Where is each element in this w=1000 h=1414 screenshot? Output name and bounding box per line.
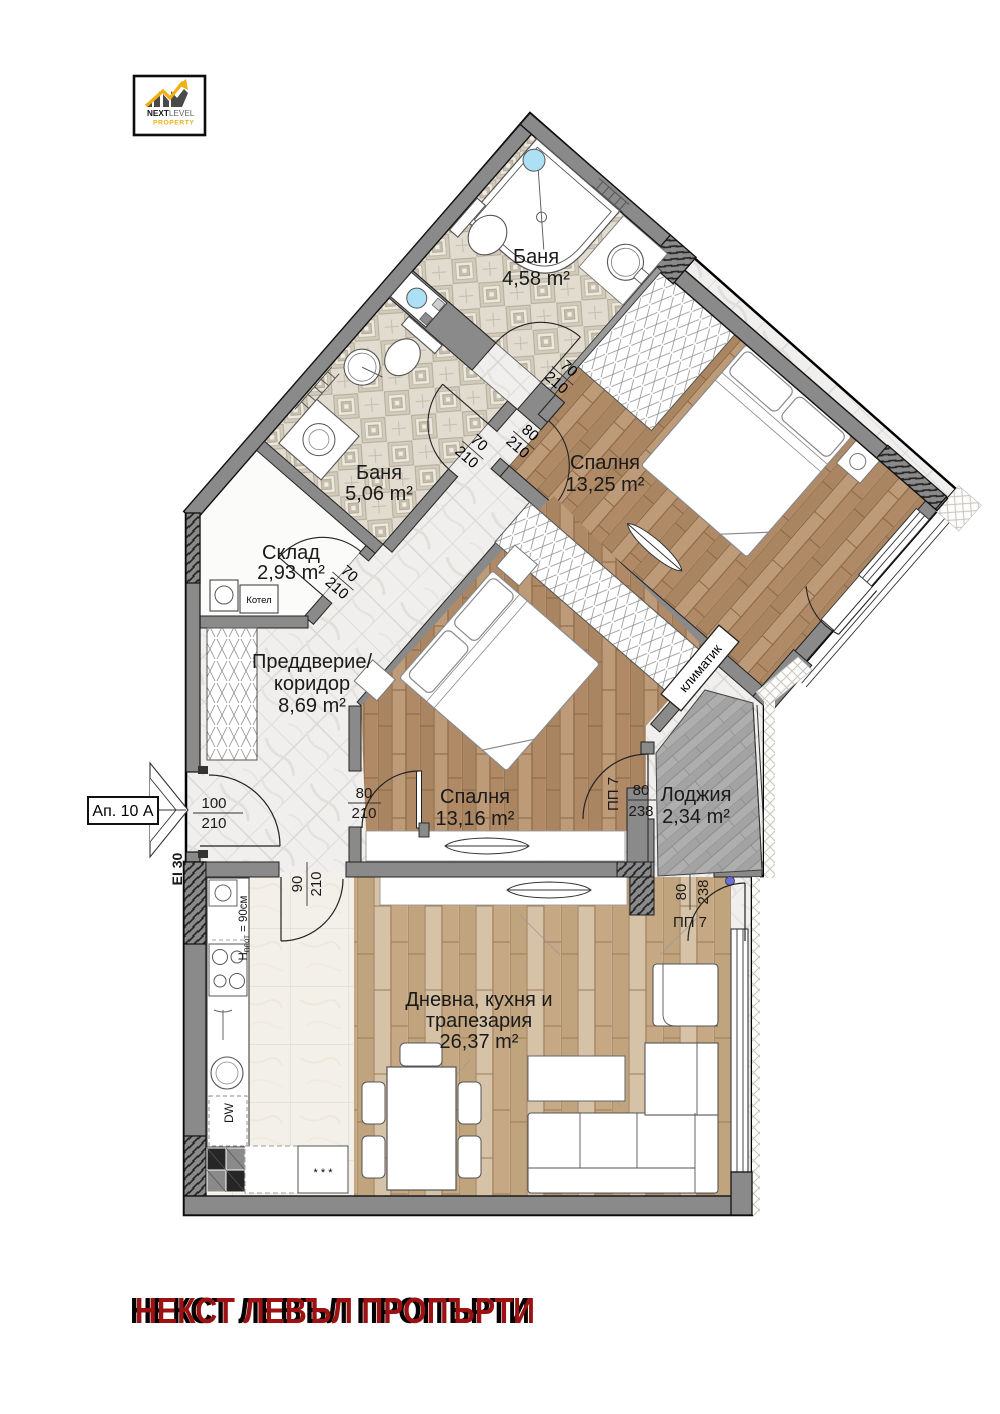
- svg-text:210: 210: [308, 871, 325, 896]
- svg-text:PROPERTY: PROPERTY: [153, 120, 194, 127]
- svg-text:коридор: коридор: [274, 673, 350, 695]
- svg-text:8,69 m²: 8,69 m²: [278, 695, 346, 717]
- svg-text:238: 238: [695, 879, 712, 904]
- svg-text:4,58 m²: 4,58 m²: [502, 268, 570, 290]
- svg-text:80: 80: [633, 782, 650, 799]
- svg-text:80: 80: [356, 785, 373, 802]
- svg-text:Спалня: Спалня: [570, 452, 640, 474]
- svg-text:210: 210: [351, 805, 376, 822]
- svg-text:NEXTLEVEL: NEXTLEVEL: [147, 109, 195, 118]
- svg-text:трапезария: трапезария: [426, 1010, 532, 1032]
- svg-text:DW: DW: [222, 1102, 236, 1123]
- svg-text:26,37 m²: 26,37 m²: [440, 1031, 519, 1053]
- svg-text:Спалня: Спалня: [440, 786, 510, 808]
- svg-text:2,34 m²: 2,34 m²: [662, 806, 730, 828]
- svg-text:13,25 m²: 13,25 m²: [566, 474, 645, 496]
- svg-text:Лоджия: Лоджия: [661, 784, 732, 806]
- svg-text:Баня: Баня: [513, 246, 559, 268]
- svg-text:ПП 7: ПП 7: [673, 914, 707, 931]
- svg-text:5,06 m²: 5,06 m²: [345, 483, 413, 505]
- svg-text:Котел: Котел: [246, 595, 271, 606]
- svg-text:100: 100: [201, 795, 226, 812]
- svg-text:13,16 m²: 13,16 m²: [436, 808, 515, 830]
- svg-text:80: 80: [673, 884, 690, 901]
- svg-text:Преддверие/: Преддверие/: [252, 651, 372, 673]
- svg-text:238: 238: [628, 803, 653, 820]
- svg-text:2,93 m²: 2,93 m²: [257, 562, 325, 584]
- svg-text:ПП 7: ПП 7: [605, 777, 622, 811]
- svg-text:EI 30: EI 30: [169, 852, 185, 885]
- svg-text:Баня: Баня: [356, 462, 402, 484]
- svg-text:* * *: * * *: [314, 1167, 334, 1179]
- svg-text:НЕКСТ ЛЕВЪЛ ПРОПЪРТИ: НЕКСТ ЛЕВЪЛ ПРОПЪРТИ: [135, 1290, 535, 1331]
- svg-text:Склад: Склад: [262, 542, 320, 564]
- svg-text:90: 90: [289, 876, 306, 893]
- svg-text:Ап. 10 А: Ап. 10 А: [92, 803, 153, 820]
- svg-text:210: 210: [201, 815, 226, 832]
- svg-text:Дневна, кухня и: Дневна, кухня и: [405, 989, 552, 1011]
